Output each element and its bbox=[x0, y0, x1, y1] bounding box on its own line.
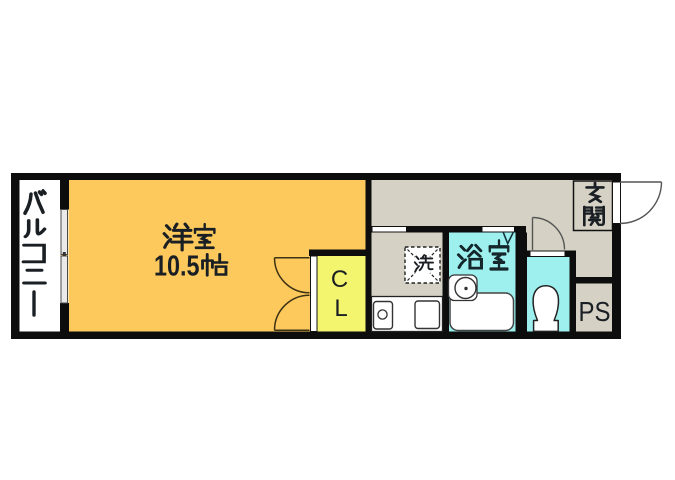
svg-text:C: C bbox=[331, 266, 348, 293]
svg-text:10.5: 10.5 bbox=[154, 251, 200, 283]
svg-text:L: L bbox=[334, 295, 347, 322]
svg-text:PS: PS bbox=[579, 296, 611, 327]
